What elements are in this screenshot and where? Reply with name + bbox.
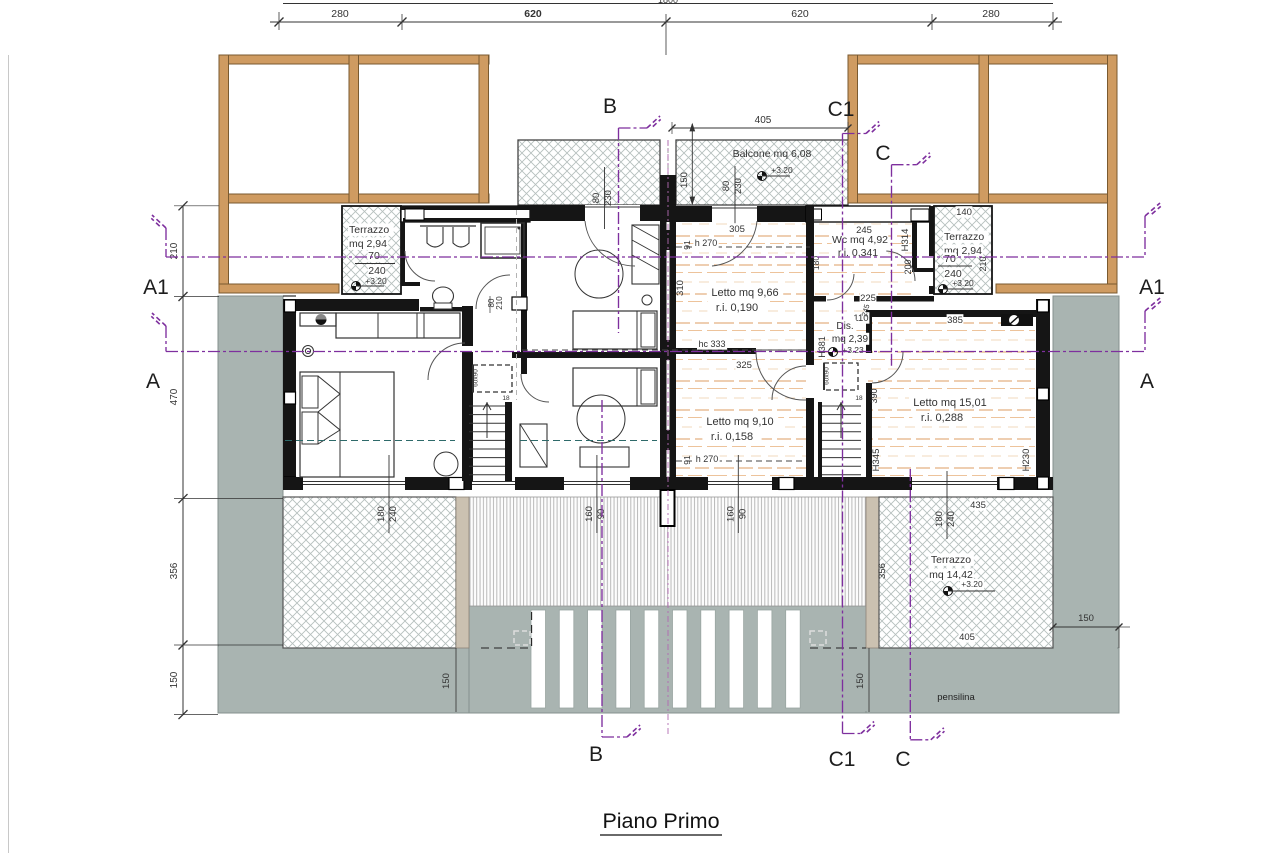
svg-text:C: C [895, 748, 910, 771]
svg-text:356: 356 [877, 563, 888, 579]
svg-text:240: 240 [388, 506, 399, 522]
svg-text:405: 405 [959, 632, 975, 643]
svg-text:Wc mq 4,92: Wc mq 4,92 [832, 234, 888, 246]
svg-text:r.i. 0,190: r.i. 0,190 [716, 302, 758, 314]
svg-text:150: 150 [679, 172, 690, 188]
svg-text:hc 333: hc 333 [698, 339, 725, 349]
svg-text:70: 70 [944, 253, 956, 265]
svg-text:91: 91 [682, 455, 692, 465]
svg-text:+3.23: +3.23 [842, 345, 864, 355]
svg-text:240: 240 [946, 511, 957, 527]
svg-text:435: 435 [970, 500, 986, 511]
svg-text:mq 2,39: mq 2,39 [832, 334, 869, 345]
svg-text:Piano Primo: Piano Primo [602, 809, 719, 833]
svg-text:h 270: h 270 [696, 454, 719, 464]
svg-text:385: 385 [947, 315, 963, 326]
svg-text:Terrazzo: Terrazzo [944, 231, 984, 243]
svg-text:280: 280 [982, 8, 1000, 20]
svg-text:225: 225 [860, 293, 876, 304]
svg-text:70: 70 [368, 250, 380, 262]
svg-text:Letto mq 15,01: Letto mq 15,01 [913, 397, 986, 409]
svg-text:150: 150 [855, 673, 866, 689]
svg-text:A: A [1140, 370, 1154, 393]
svg-text:180: 180 [811, 256, 821, 270]
svg-text:+3.20: +3.20 [771, 165, 793, 175]
svg-text:B: B [589, 743, 603, 766]
svg-text:18: 18 [855, 395, 863, 402]
svg-text:18: 18 [502, 395, 510, 402]
svg-text:Letto mq 9,66: Letto mq 9,66 [711, 287, 778, 299]
svg-text:150: 150 [1078, 613, 1094, 624]
svg-text:H314: H314 [900, 229, 911, 252]
svg-text:91: 91 [682, 240, 692, 250]
svg-text:180: 180 [934, 511, 945, 527]
svg-text:405: 405 [755, 115, 772, 126]
svg-text:90: 90 [737, 509, 748, 520]
svg-text:160: 160 [725, 506, 736, 522]
svg-text:80: 80 [591, 193, 602, 204]
svg-text:Terrazzo: Terrazzo [931, 554, 971, 566]
svg-text:C: C [875, 142, 890, 165]
svg-text:305: 305 [729, 224, 745, 235]
svg-text:C1: C1 [829, 748, 856, 771]
svg-text:+3.20: +3.20 [952, 278, 974, 288]
svg-text:80: 80 [721, 181, 732, 192]
svg-text:160: 160 [584, 506, 595, 522]
svg-text:A: A [146, 370, 160, 393]
svg-text:C1: C1 [828, 98, 855, 121]
svg-text:1800: 1800 [658, 0, 678, 5]
svg-text:+3.20: +3.20 [365, 276, 387, 286]
svg-text:470: 470 [169, 388, 180, 405]
svg-text:280: 280 [331, 8, 349, 20]
svg-text:A1: A1 [1139, 276, 1165, 299]
svg-text:325: 325 [736, 360, 752, 371]
svg-text:390: 390 [869, 388, 879, 403]
svg-text:180: 180 [376, 506, 387, 522]
svg-text:230: 230 [733, 178, 744, 194]
svg-text:H230: H230 [1021, 449, 1032, 472]
svg-text:H345: H345 [871, 449, 882, 472]
svg-text:h 270: h 270 [695, 238, 718, 248]
svg-text:150: 150 [169, 671, 180, 688]
svg-text:210: 210 [495, 296, 504, 310]
svg-text:r.i. 0,158: r.i. 0,158 [711, 431, 753, 443]
svg-text:mq 2,94: mq 2,94 [349, 238, 387, 250]
svg-text:60x90: 60x90 [824, 367, 831, 385]
svg-text:60x90: 60x90 [473, 369, 480, 387]
svg-text:H381: H381 [817, 336, 827, 358]
svg-text:200: 200 [903, 259, 913, 274]
svg-text:Dis.: Dis. [836, 321, 853, 332]
svg-text:620: 620 [524, 8, 542, 20]
svg-text:+3.20: +3.20 [961, 579, 983, 589]
svg-text:r.i. 0,288: r.i. 0,288 [921, 412, 963, 424]
svg-text:Balcone mq 6,08: Balcone mq 6,08 [733, 148, 812, 160]
svg-text:356: 356 [169, 562, 180, 579]
svg-text:310: 310 [675, 280, 686, 296]
svg-text:140: 140 [956, 207, 972, 218]
svg-text:150: 150 [441, 673, 452, 689]
svg-text:B: B [603, 95, 617, 118]
svg-text:Terrazzo: Terrazzo [349, 224, 389, 236]
svg-text:210: 210 [978, 256, 988, 271]
svg-text:pensilina: pensilina [937, 692, 975, 703]
svg-text:Letto mq 9,10: Letto mq 9,10 [706, 416, 773, 428]
svg-text:620: 620 [791, 8, 809, 20]
svg-text:A1: A1 [143, 276, 169, 299]
svg-text:230: 230 [603, 190, 614, 206]
